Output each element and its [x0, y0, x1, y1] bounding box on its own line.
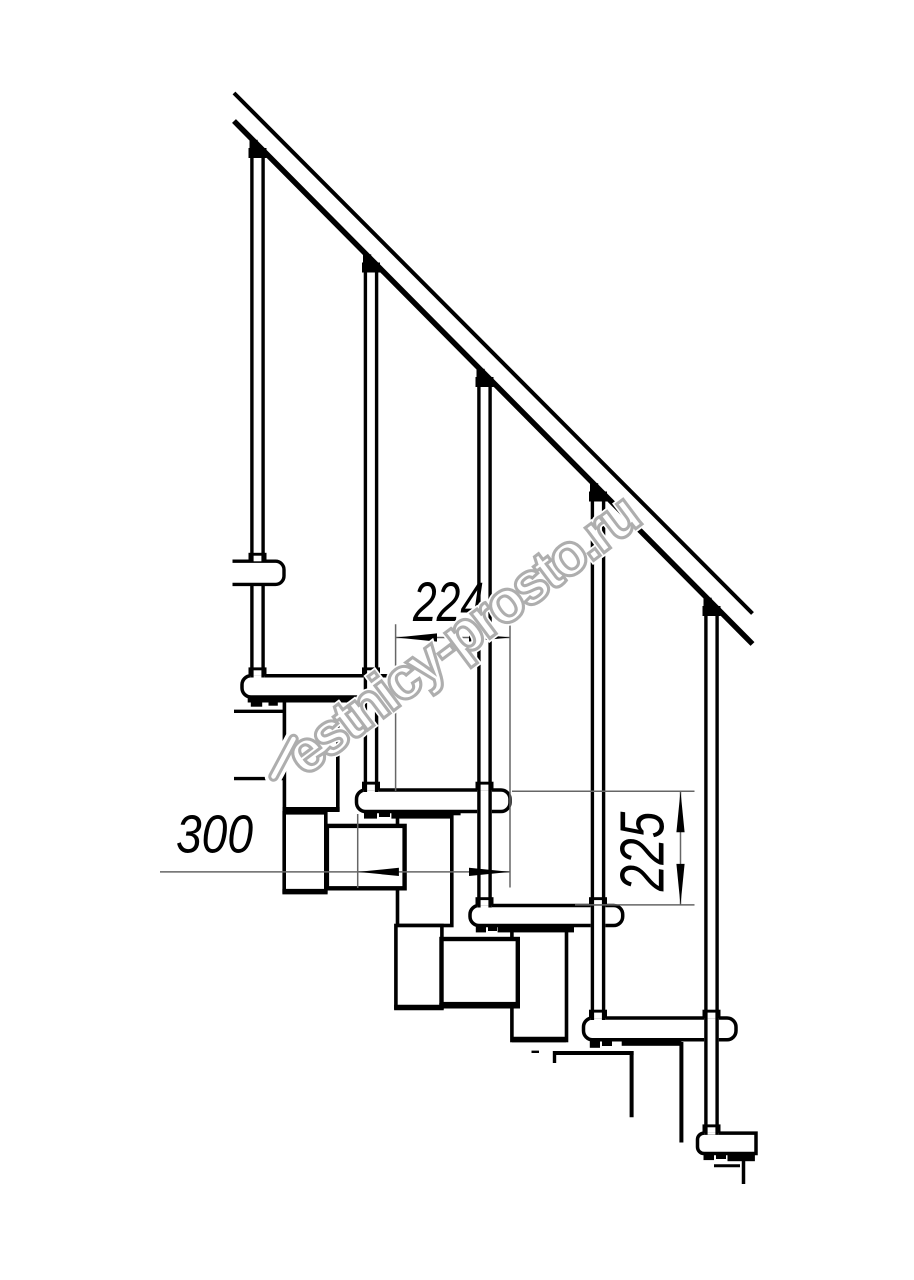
svg-text:300: 300 [176, 805, 253, 865]
svg-text:225: 225 [609, 811, 678, 892]
